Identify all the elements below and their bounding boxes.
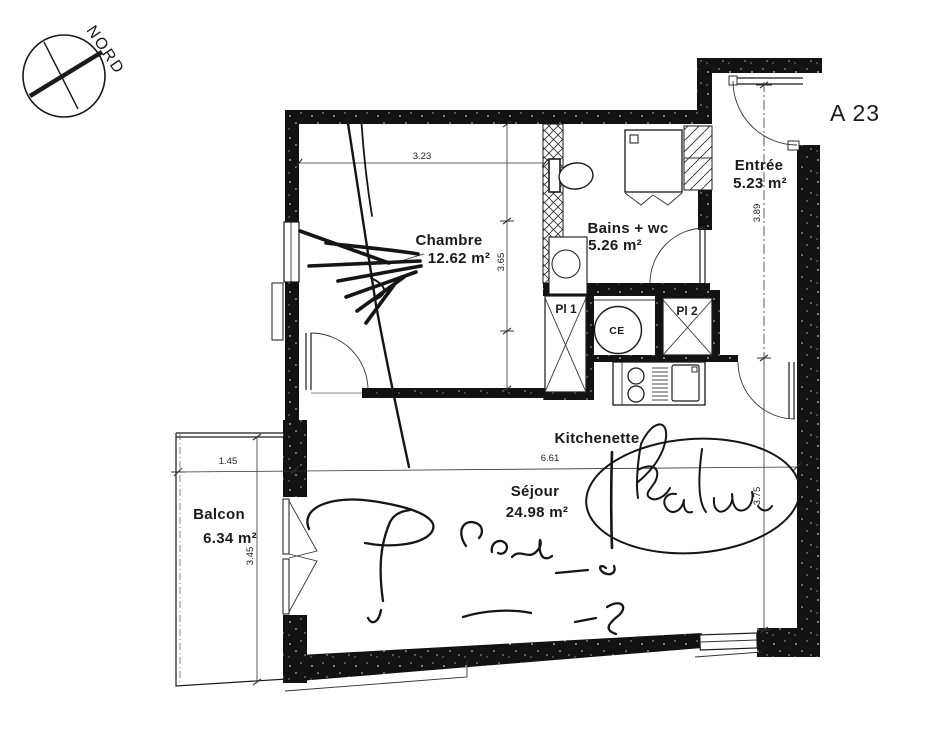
wall-bottom-right-corner [757, 628, 820, 657]
room-area-sejour: 24.98 m² [506, 504, 568, 521]
cooktop-burner [628, 386, 644, 402]
room-label-chambre: Chambre [415, 232, 482, 249]
wall-closet2-top [655, 290, 720, 298]
french-door-swing [289, 501, 317, 612]
room-area-chambre: 12.62 m² [428, 250, 490, 267]
wall-left-pier [283, 420, 307, 497]
sink-icon [672, 365, 699, 401]
room-area-balcon: 6.34 m² [203, 530, 257, 547]
dim-chambre-width: 3.23 [413, 151, 432, 162]
sejour-door-swing [738, 362, 795, 419]
closet2-label: Pl 2 [676, 304, 698, 318]
cooktop-burner [628, 368, 644, 384]
kitchenette-counter [613, 362, 705, 405]
dim-sejour-width: 6.61 [541, 453, 560, 464]
floor-plan-page: NORD A 23 [0, 0, 943, 736]
floor-plan-drawing: NORD A 23 [0, 0, 943, 736]
wall-entree-west [712, 290, 720, 362]
room-area-bains: 5.26 m² [588, 237, 642, 254]
wall-left-mid [285, 282, 299, 420]
toilet-icon [549, 159, 595, 192]
room-label-balcon: Balcon [193, 506, 245, 523]
room-label-sejour: Séjour [511, 483, 559, 500]
wall-closet-divider [586, 290, 594, 400]
room-label-kitchenette: Kitchenette [555, 430, 640, 447]
dim-balcon-height: 3.45 [245, 547, 256, 566]
entry-door [729, 76, 803, 150]
wall-kitchenette-top [592, 355, 738, 362]
dim-sejour-height: 3.75 [752, 487, 763, 506]
wall-bottom-left-corner [283, 615, 307, 683]
handwritten-stroke-short [361, 114, 372, 216]
chambre-door [306, 333, 372, 398]
room-label-bains: Bains + wc [588, 220, 669, 237]
chambre-window [284, 222, 299, 282]
wall-right [797, 145, 820, 640]
entry-door-swing [733, 81, 797, 145]
room-area-entree: 5.23 m² [733, 175, 787, 192]
wall-entree-top [697, 58, 822, 73]
faucet-icon [692, 367, 697, 372]
sejour-west-window [272, 283, 283, 340]
chambre-door-swing [311, 333, 368, 390]
compass-north-icon [23, 35, 105, 117]
water-heater-label: CE [609, 325, 625, 337]
drainer-icon [652, 368, 668, 400]
sejour-south-window [695, 633, 762, 657]
wall-closet1-bottom [543, 392, 594, 400]
shower-icon [625, 130, 682, 205]
balcony-french-doors [283, 499, 317, 614]
wall-bains-east [698, 190, 712, 230]
wall-closet2-left [655, 298, 663, 357]
wall-bottom [299, 633, 702, 681]
plan-title: A 23 [830, 100, 880, 126]
handwritten-signature-sejour [307, 500, 623, 634]
room-label-entree: Entrée [735, 157, 784, 174]
washbasin-icon [549, 237, 587, 294]
dim-entree-height: 3.89 [752, 204, 763, 223]
handwritten-scribble-chambre [300, 231, 421, 323]
dim-chambre-height: 3.65 [496, 253, 507, 272]
closet1-label: Pl 1 [555, 302, 577, 316]
dim-balcon-width: 1.45 [219, 456, 238, 467]
sejour-entree-door [738, 362, 795, 419]
